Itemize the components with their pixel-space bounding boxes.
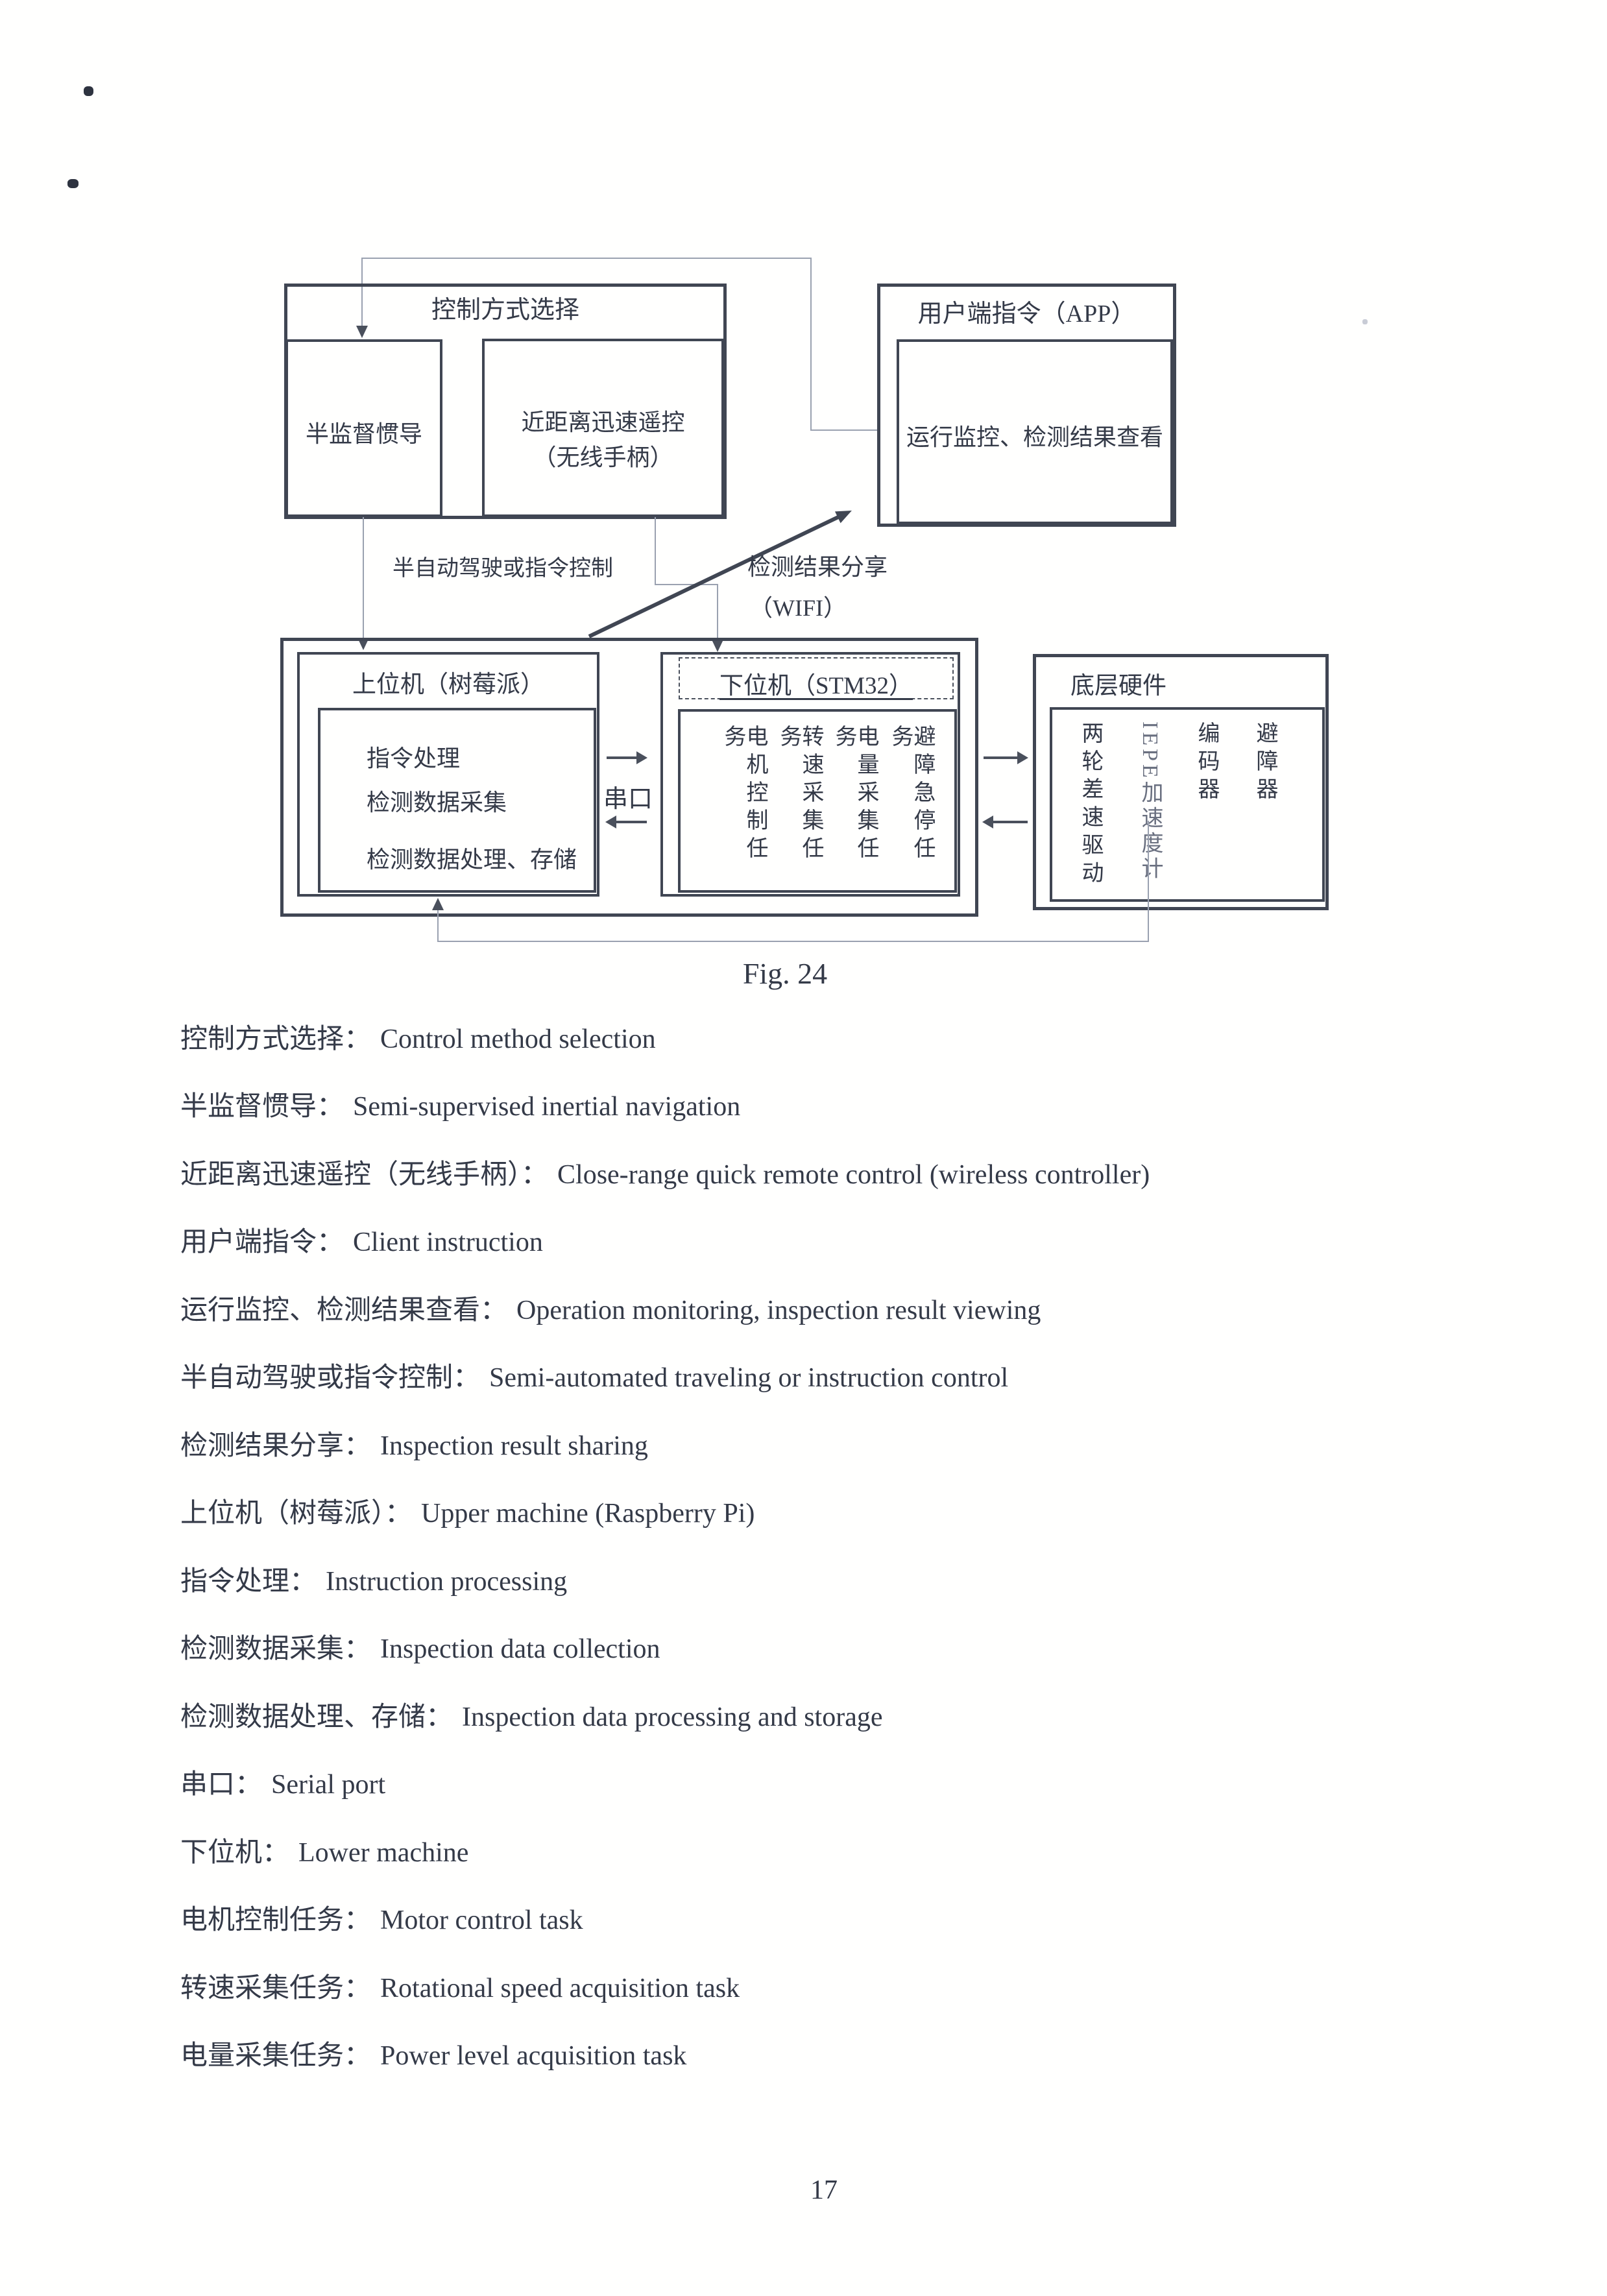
glossary-term: 指令处理： [180, 1567, 317, 1597]
lower-machine-task: 转速采集任务 [777, 725, 821, 890]
glossary-row: 用户端指令：Client instruction [180, 1224, 543, 1261]
feedback-line-right-vert [1148, 821, 1149, 942]
glossary-row: 半自动驾驶或指令控制：Semi-automated traveling or i… [180, 1360, 1008, 1396]
ink-speck [1362, 319, 1368, 324]
upper-machine-item: 指令处理 [367, 740, 460, 773]
remote-line-h [655, 584, 718, 585]
glossary-row: 近距离迅速遥控（无线手柄）：Close-range quick remote c… [180, 1157, 1150, 1193]
control-method-title: 控制方式选择 [284, 289, 727, 325]
glossary-row: 检测数据采集：Inspection data collection [180, 1631, 660, 1667]
serial-arrow-right-shaft [607, 756, 638, 759]
lower-machine-task: 电量采集任务 [832, 725, 876, 890]
semi-supervised-label: 半监督惯导 [285, 415, 442, 449]
glossary-term: 电量采集任务： [180, 2041, 371, 2071]
arrow-up-right-wifi-icon [835, 505, 854, 523]
hw-arrow-right-shaft [984, 756, 1019, 759]
remote-control-label-line2: （无线手柄） [482, 439, 724, 472]
route-top-line [361, 258, 812, 259]
patent-page: 控制方式选择 半监督惯导 近距离迅速遥控 （无线手柄） 用户端指令（APP） 运… [0, 0, 1607, 2296]
client-app-content: 运行监控、检测结果查看 [897, 418, 1173, 452]
glossary-term: 半自动驾驶或指令控制： [180, 1363, 480, 1393]
glossary-term: 控制方式选择： [180, 1024, 371, 1054]
glossary-definition: Close-range quick remote control (wirele… [557, 1160, 1150, 1190]
glossary-definition: Lower machine [298, 1838, 468, 1868]
glossary-term: 下位机： [180, 1838, 289, 1868]
semi-auto-line [363, 517, 364, 639]
glossary-term: 检测数据采集： [180, 1634, 371, 1664]
glossary-row: 检测结果分享：Inspection result sharing [180, 1428, 648, 1464]
glossary-definition: Power level acquisition task [380, 2041, 686, 2071]
serial-port-label: 串口 [602, 779, 654, 814]
glossary-definition: Operation monitoring, inspection result … [516, 1296, 1041, 1325]
lower-machine-title: 下位机（STM32） [679, 666, 954, 701]
wifi-share-label-line2: （WIFI） [749, 589, 847, 623]
arrow-up-feedback-icon [432, 898, 444, 910]
arrow-left-hardware-icon [982, 816, 993, 828]
glossary-term: 半监督惯导： [180, 1092, 344, 1122]
arrow-left-serial-icon [605, 816, 616, 828]
route-into-client-line [810, 429, 878, 431]
arrow-right-serial-icon [636, 751, 647, 764]
lower-machine-task: 电机控制任务 [721, 725, 766, 890]
glossary-row: 电量采集任务：Power level acquisition task [180, 2038, 686, 2074]
hardware-component: 编码器 [1195, 721, 1217, 805]
hardware-component: IEPE加速度计 [1139, 721, 1161, 882]
glossary-row: 指令处理：Instruction processing [180, 1564, 567, 1600]
glossary-row: 转速采集任务：Rotational speed acquisition task [180, 1970, 740, 2007]
glossary-definition: Client instruction [353, 1227, 543, 1257]
glossary-row: 下位机：Lower machine [180, 1835, 468, 1871]
ink-speck [84, 86, 93, 96]
glossary-definition: Semi-automated traveling or instruction … [489, 1363, 1008, 1393]
lower-machine-inner-box: 电机控制任务 转速采集任务 电量采集任务 避障急停任务 [678, 709, 957, 893]
glossary-term: 检测结果分享： [180, 1431, 371, 1461]
upper-machine-title: 上位机（树莓派） [297, 664, 599, 699]
glossary-term: 串口： [180, 1770, 262, 1800]
remote-line-v2 [717, 584, 718, 641]
wifi-share-label-line1: 检测结果分享 [747, 548, 888, 582]
hardware-component: 避障器 [1253, 721, 1275, 805]
glossary-row: 串口：Serial port [180, 1767, 385, 1803]
semi-auto-label: 半自动驾驶或指令控制 [392, 550, 614, 582]
glossary-definition: Rotational speed acquisition task [380, 1974, 740, 2003]
upper-machine-item: 检测数据处理、存储 [367, 841, 577, 875]
glossary-row: 运行监控、检测结果查看：Operation monitoring, inspec… [180, 1292, 1041, 1329]
serial-arrow-left-shaft [616, 821, 647, 823]
glossary-row: 控制方式选择：Control method selection [180, 1021, 656, 1057]
page-number: 17 [746, 2175, 902, 2206]
glossary-definition: Upper machine (Raspberry Pi) [421, 1499, 755, 1529]
glossary-term: 用户端指令： [180, 1227, 344, 1257]
glossary-definition: Serial port [271, 1770, 385, 1800]
glossary-definition: Inspection result sharing [380, 1431, 648, 1461]
glossary-term: 检测数据处理、存储： [180, 1702, 453, 1732]
hardware-component: 两轮差速驱动 [1079, 721, 1101, 889]
feedback-line-left-vert [437, 910, 439, 942]
remote-line-v1 [655, 517, 656, 585]
arrow-right-hardware-icon [1017, 751, 1028, 764]
glossary-definition: Instruction processing [326, 1567, 567, 1597]
ink-speck [67, 179, 79, 188]
glossary-definition: Inspection data collection [380, 1634, 660, 1664]
glossary-definition: Semi-supervised inertial navigation [353, 1092, 740, 1122]
glossary-row: 半监督惯导：Semi-supervised inertial navigatio… [180, 1089, 740, 1125]
glossary-row: 电机控制任务：Motor control task [180, 1902, 583, 1939]
glossary-definition: Motor control task [380, 1905, 583, 1935]
glossary-definition: Inspection data processing and storage [462, 1702, 882, 1732]
route-right-vert-line [810, 258, 812, 431]
glossary-term: 近距离迅速遥控（无线手柄）： [180, 1160, 548, 1190]
hardware-inner-box: 两轮差速驱动 IEPE加速度计 编码器 避障器 [1050, 707, 1325, 902]
hardware-title: 底层硬件 [1070, 666, 1166, 701]
glossary-definition: Control method selection [380, 1024, 656, 1054]
glossary-term: 运行监控、检测结果查看： [180, 1296, 507, 1325]
hw-arrow-left-shaft [993, 821, 1028, 823]
feedback-line-horizontal [438, 941, 1149, 942]
glossary-row: 上位机（树莓派）：Upper machine (Raspberry Pi) [180, 1495, 755, 1532]
remote-control-label-line1: 近距离迅速遥控 [482, 404, 724, 437]
client-app-title: 用户端指令（APP） [877, 293, 1176, 329]
upper-machine-item: 检测数据采集 [367, 784, 507, 817]
figure-caption: Fig. 24 [681, 956, 889, 991]
glossary-row: 检测数据处理、存储：Inspection data processing and… [180, 1699, 882, 1735]
lower-machine-task: 避障急停任务 [889, 725, 933, 890]
glossary-term: 转速采集任务： [180, 1974, 371, 2003]
glossary-term: 上位机（树莓派）： [180, 1499, 412, 1529]
glossary-term: 电机控制任务： [180, 1905, 371, 1935]
